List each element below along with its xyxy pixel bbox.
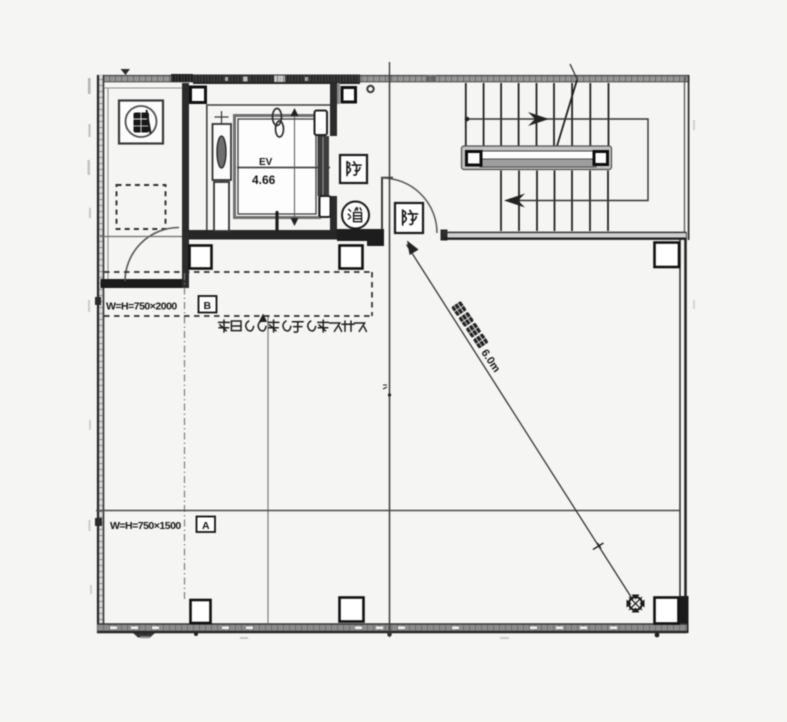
svg-text:4.66: 4.66	[252, 173, 276, 187]
svg-text:W=H=750×2000: W=H=750×2000	[106, 301, 177, 313]
svg-text:B: B	[204, 300, 212, 312]
svg-text:W=H=750×1500: W=H=750×1500	[110, 520, 181, 532]
svg-text:A: A	[202, 520, 210, 532]
svg-text:EV: EV	[259, 157, 273, 168]
